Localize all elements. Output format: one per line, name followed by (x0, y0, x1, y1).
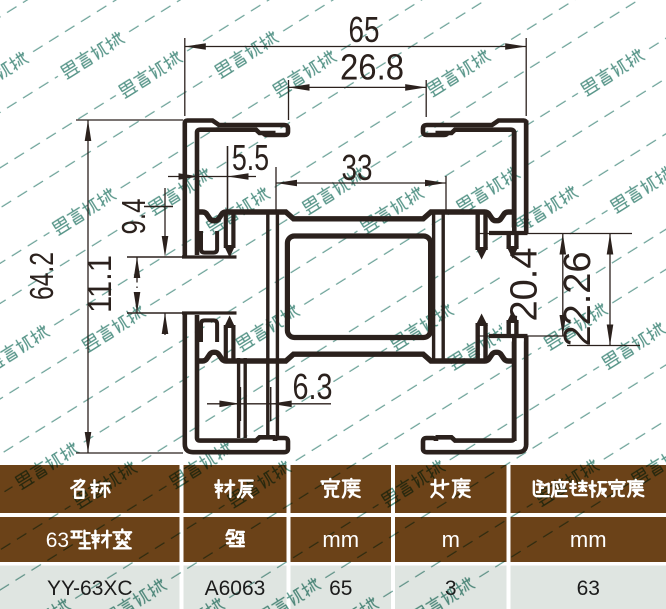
svg-text:65: 65 (329, 577, 352, 600)
svg-text:26.8: 26.8 (340, 47, 404, 88)
svg-text:3: 3 (445, 577, 457, 600)
svg-text:m: m (442, 527, 460, 552)
svg-text:YY-63XC: YY-63XC (47, 577, 133, 600)
svg-text:64.2: 64.2 (23, 252, 60, 300)
svg-text:6.3: 6.3 (293, 366, 333, 407)
svg-text:A6063: A6063 (205, 577, 266, 600)
svg-text:20.4: 20.4 (504, 248, 546, 322)
svg-text:65: 65 (349, 9, 380, 50)
svg-text:33: 33 (342, 147, 373, 188)
svg-text:63: 63 (46, 529, 69, 552)
svg-text:5.5: 5.5 (232, 137, 269, 178)
svg-text:11.1: 11.1 (81, 255, 118, 313)
svg-text:9.4: 9.4 (115, 199, 152, 235)
svg-text:mm: mm (322, 527, 359, 552)
svg-text:63: 63 (577, 577, 600, 600)
svg-text:mm: mm (570, 527, 607, 552)
svg-text:22.26: 22.26 (557, 251, 599, 346)
